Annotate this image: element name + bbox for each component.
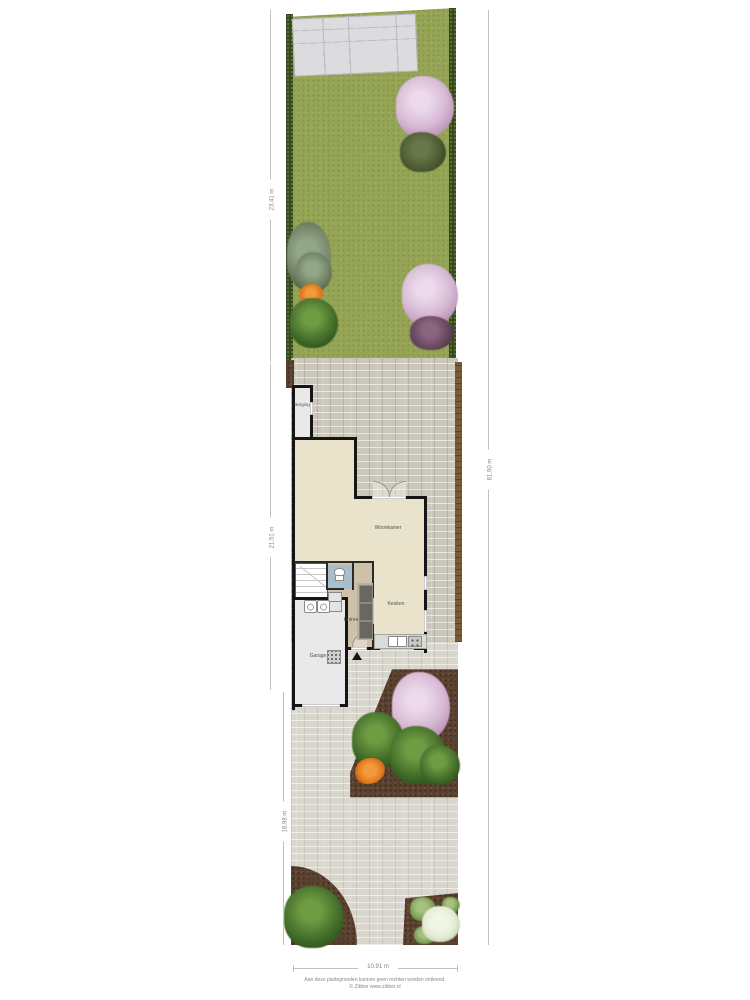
blossom-tree <box>396 76 454 138</box>
soil-strip <box>286 360 294 388</box>
garage-door-gap <box>302 704 340 707</box>
meter-closet <box>328 601 342 612</box>
purple-shrub <box>410 316 454 350</box>
dark-shrub <box>400 132 446 172</box>
footer-disclaimer-line1: Aan deze plattegronden kunnen geen recht… <box>275 977 475 984</box>
dimension-label-total-depth: 61.90 m <box>488 450 495 490</box>
tile-pad <box>292 13 418 76</box>
toilet-wall <box>352 563 354 590</box>
window-east-1 <box>424 576 427 590</box>
dimension-label-house-depth: 21.51 m <box>270 518 277 558</box>
wall <box>292 385 295 440</box>
tall-cabinet <box>359 621 373 639</box>
dimension-label-plot-width: 10.91 m <box>358 964 398 971</box>
berging-floor <box>295 388 310 437</box>
woonkamer-floor <box>295 440 354 565</box>
footer-credit: © Zibber www.zibber.nl <box>275 984 475 991</box>
toilet-wall <box>326 563 328 590</box>
wall-west <box>292 437 295 710</box>
room-label-woonkamer: Woonkamer <box>368 525 408 531</box>
white-flowering-shrub <box>422 906 460 942</box>
washer-icon <box>304 600 317 613</box>
toilet-wall <box>326 588 344 590</box>
site-plan: Berging Woonkamer Keuken <box>0 0 750 1000</box>
dimension-tick <box>457 965 458 972</box>
interior-wall <box>294 561 374 563</box>
front-bush <box>420 745 460 785</box>
room-label-keuken: Keuken <box>381 601 411 607</box>
window-east-2 <box>424 610 427 632</box>
toilet-cistern <box>335 575 344 581</box>
front-door-gap <box>351 647 367 650</box>
footer-disclaimer: Aan deze plattegronden kunnen geen recht… <box>275 977 475 990</box>
dimension-label-garden-depth: 23.41 m <box>270 180 277 220</box>
wall-north <box>292 437 357 440</box>
wall-notch-vertical <box>354 437 357 499</box>
garden-bush <box>290 298 338 348</box>
dimension-label-frontyard-depth: 16.98 m <box>283 802 290 842</box>
tall-cabinet <box>359 585 373 603</box>
dimension-tick <box>293 965 294 972</box>
sink-icon <box>397 636 407 647</box>
room-label-entree: Entree <box>338 617 364 623</box>
room-label-garage: Garage <box>304 653 332 659</box>
room-label-berging: Berging <box>291 402 313 408</box>
entrance-marker-icon <box>352 652 362 660</box>
corner-bush <box>284 886 344 948</box>
stove-icon <box>408 636 422 647</box>
garage-wall-east <box>345 597 348 707</box>
dryer-icon <box>317 600 330 613</box>
fence <box>455 362 462 642</box>
